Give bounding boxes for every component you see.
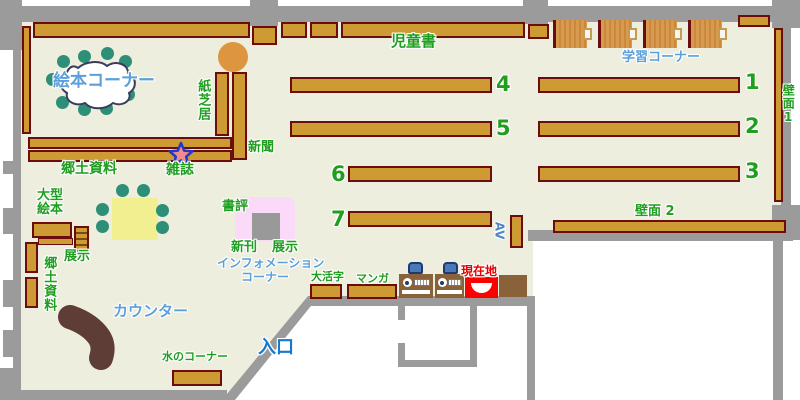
label-shelf-number-4: 4 bbox=[496, 73, 511, 96]
label-tenji-center: 展示 bbox=[272, 241, 298, 255]
label-shohyo: 書評 bbox=[222, 200, 248, 214]
label-ogata-ehon: 大型 絵本 bbox=[37, 189, 63, 218]
label-shinkan: 新刊 bbox=[231, 241, 257, 255]
label-kamishibai: 紙芝居 bbox=[195, 79, 209, 121]
label-iriguchi: 入口 bbox=[258, 338, 294, 358]
label-shelf-number-2: 2 bbox=[745, 115, 760, 138]
label-ehon-corner: 絵本コーナー bbox=[53, 72, 155, 91]
label-hekimen1: 壁面1 bbox=[781, 84, 794, 125]
label-tenji-left: 展示 bbox=[64, 250, 90, 264]
label-kyodo-shiryo: 郷土資料 bbox=[61, 162, 117, 177]
label-shelf-number-7: 7 bbox=[331, 208, 346, 231]
label-kyodo-shiryo-side: 郷土資料 bbox=[41, 256, 55, 312]
label-zasshi: 雑誌 bbox=[166, 163, 194, 178]
label-manga: マンガ bbox=[356, 273, 389, 285]
label-mizu-corner: 水のコーナー bbox=[162, 351, 228, 363]
label-shinbun: 新聞 bbox=[248, 141, 274, 155]
pc-screen-dot-2 bbox=[440, 281, 444, 285]
label-jidosho: 児童書 bbox=[391, 33, 436, 50]
counter-shape bbox=[70, 317, 103, 358]
label-ogata-ehon-line2: 絵本 bbox=[37, 202, 63, 217]
pc-screen-dot-1 bbox=[405, 281, 409, 285]
label-counter: カウンター bbox=[113, 303, 188, 320]
label-shelf-number-1: 1 bbox=[745, 71, 760, 94]
label-shelf-number-5: 5 bbox=[496, 117, 511, 140]
label-information-line2: コーナー bbox=[241, 271, 289, 284]
label-hekimen2: 壁面 2 bbox=[635, 205, 675, 219]
label-ogata-ehon-line1: 大型 bbox=[37, 188, 63, 203]
library-floor-map: 児童書 学習コーナー 壁面1 壁面 2 絵本コーナー 紙芝居 新聞 郷土資料 雑… bbox=[0, 0, 800, 400]
label-shelf-number-3: 3 bbox=[745, 160, 760, 183]
label-genzaichi: 現在地 bbox=[461, 265, 497, 278]
label-information-line1: インフォメーション bbox=[217, 257, 324, 270]
label-av: AV bbox=[492, 222, 505, 240]
label-shelf-number-6: 6 bbox=[331, 163, 346, 186]
label-gakushu-corner: 学習コーナー bbox=[622, 51, 700, 65]
label-okatsuji: 大活字 bbox=[311, 271, 344, 283]
